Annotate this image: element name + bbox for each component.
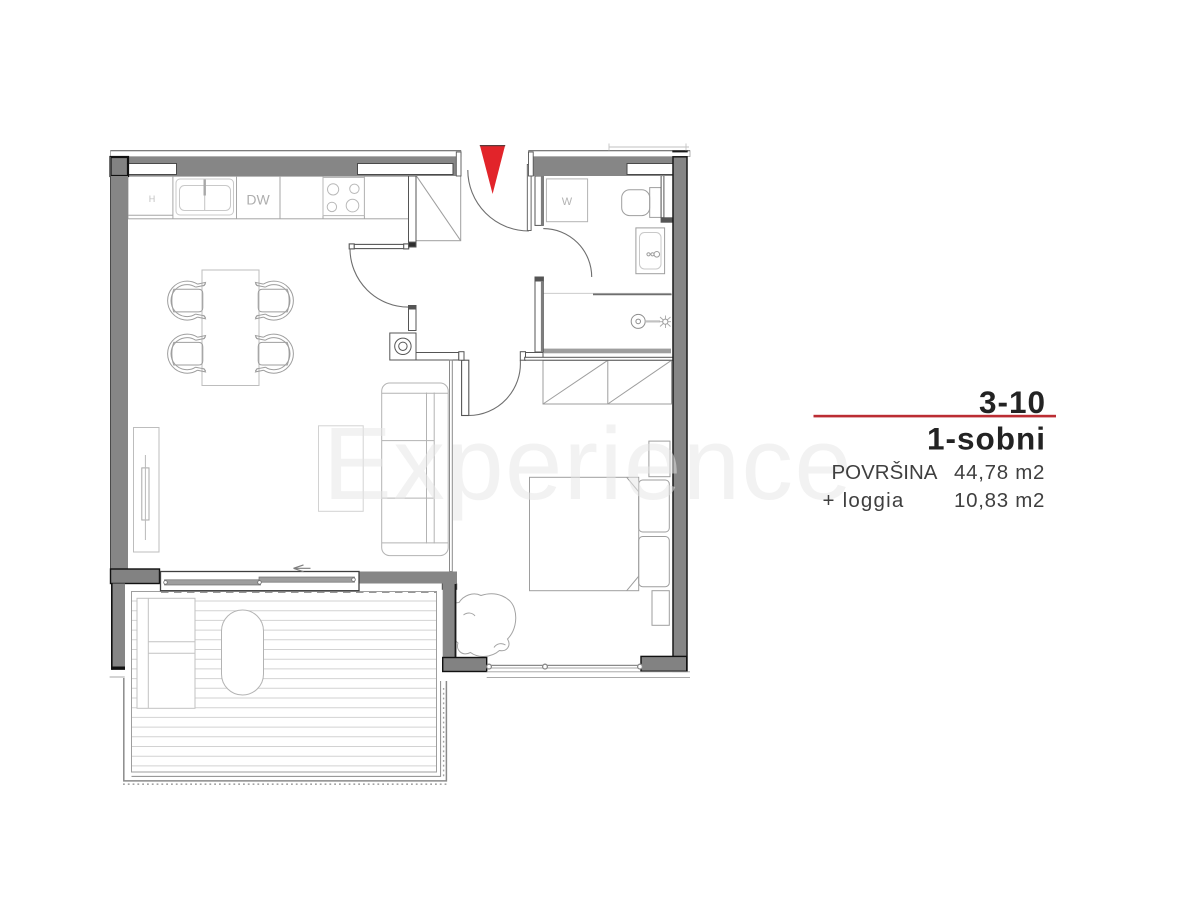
- svg-text:W: W: [562, 196, 573, 208]
- svg-text:DW: DW: [246, 192, 270, 208]
- svg-text:10,83 m2: 10,83 m2: [954, 489, 1045, 512]
- svg-text:+ loggia: + loggia: [823, 489, 905, 512]
- svg-text:1-sobni: 1-sobni: [927, 421, 1046, 457]
- svg-text:H: H: [149, 194, 156, 204]
- svg-text:Experience: Experience: [323, 406, 853, 521]
- svg-text:3-10: 3-10: [979, 384, 1046, 420]
- svg-text:POVRŠINA: POVRŠINA: [832, 461, 938, 484]
- svg-text:44,78 m2: 44,78 m2: [954, 461, 1045, 484]
